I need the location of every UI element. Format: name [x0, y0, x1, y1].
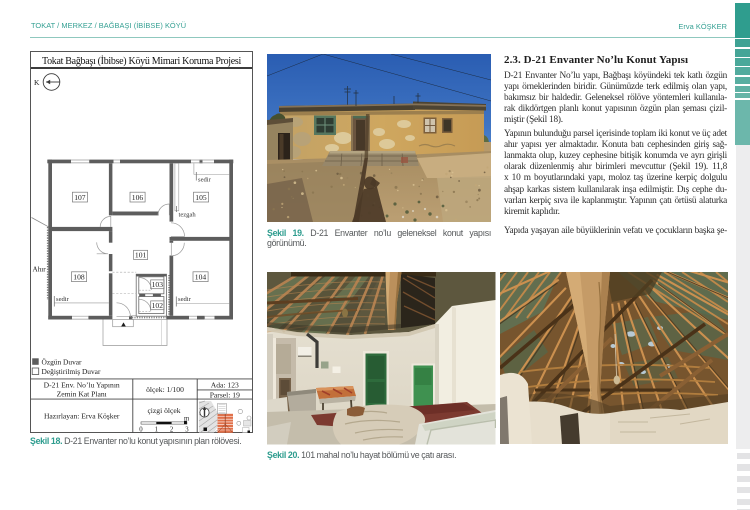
svg-text:106: 106	[131, 192, 143, 201]
svg-text:3: 3	[185, 426, 189, 433]
svg-text:104: 104	[194, 272, 206, 281]
svg-text:2: 2	[169, 426, 173, 433]
svg-text:Özgün Duvar: Özgün Duvar	[41, 357, 82, 366]
svg-text:sedir: sedir	[56, 296, 70, 303]
svg-text:D-21 Env. No’lu Yapının: D-21 Env. No’lu Yapının	[43, 380, 119, 389]
svg-text:Ahır: Ahır	[32, 265, 46, 273]
svg-text:Değiştirilmiş Duvar: Değiştirilmiş Duvar	[41, 367, 100, 376]
svg-text:Ada: 123: Ada: 123	[210, 380, 238, 389]
svg-text:103: 103	[151, 280, 163, 289]
svg-text:1: 1	[154, 426, 157, 433]
svg-text:Hazırlayan: Erva Köşker: Hazırlayan: Erva Köşker	[43, 411, 119, 420]
svg-text:çizgi ölçek: çizgi ölçek	[147, 406, 180, 415]
svg-text:tezgah: tezgah	[178, 211, 196, 218]
svg-text:Parsel: 19: Parsel: 19	[209, 390, 239, 399]
svg-text:0: 0	[139, 426, 143, 433]
svg-text:102: 102	[151, 301, 163, 310]
svg-text:K: K	[34, 78, 40, 87]
svg-text:Zemin Kat Planı: Zemin Kat Planı	[56, 389, 106, 398]
svg-text:101: 101	[134, 250, 146, 259]
svg-text:sedir: sedir	[178, 296, 192, 303]
svg-text:105: 105	[195, 192, 207, 201]
svg-text:ölçek: 1/100: ölçek: 1/100	[146, 385, 184, 394]
svg-text:sedir: sedir	[198, 176, 212, 183]
svg-text:107: 107	[74, 192, 86, 201]
svg-text:108: 108	[73, 272, 85, 281]
